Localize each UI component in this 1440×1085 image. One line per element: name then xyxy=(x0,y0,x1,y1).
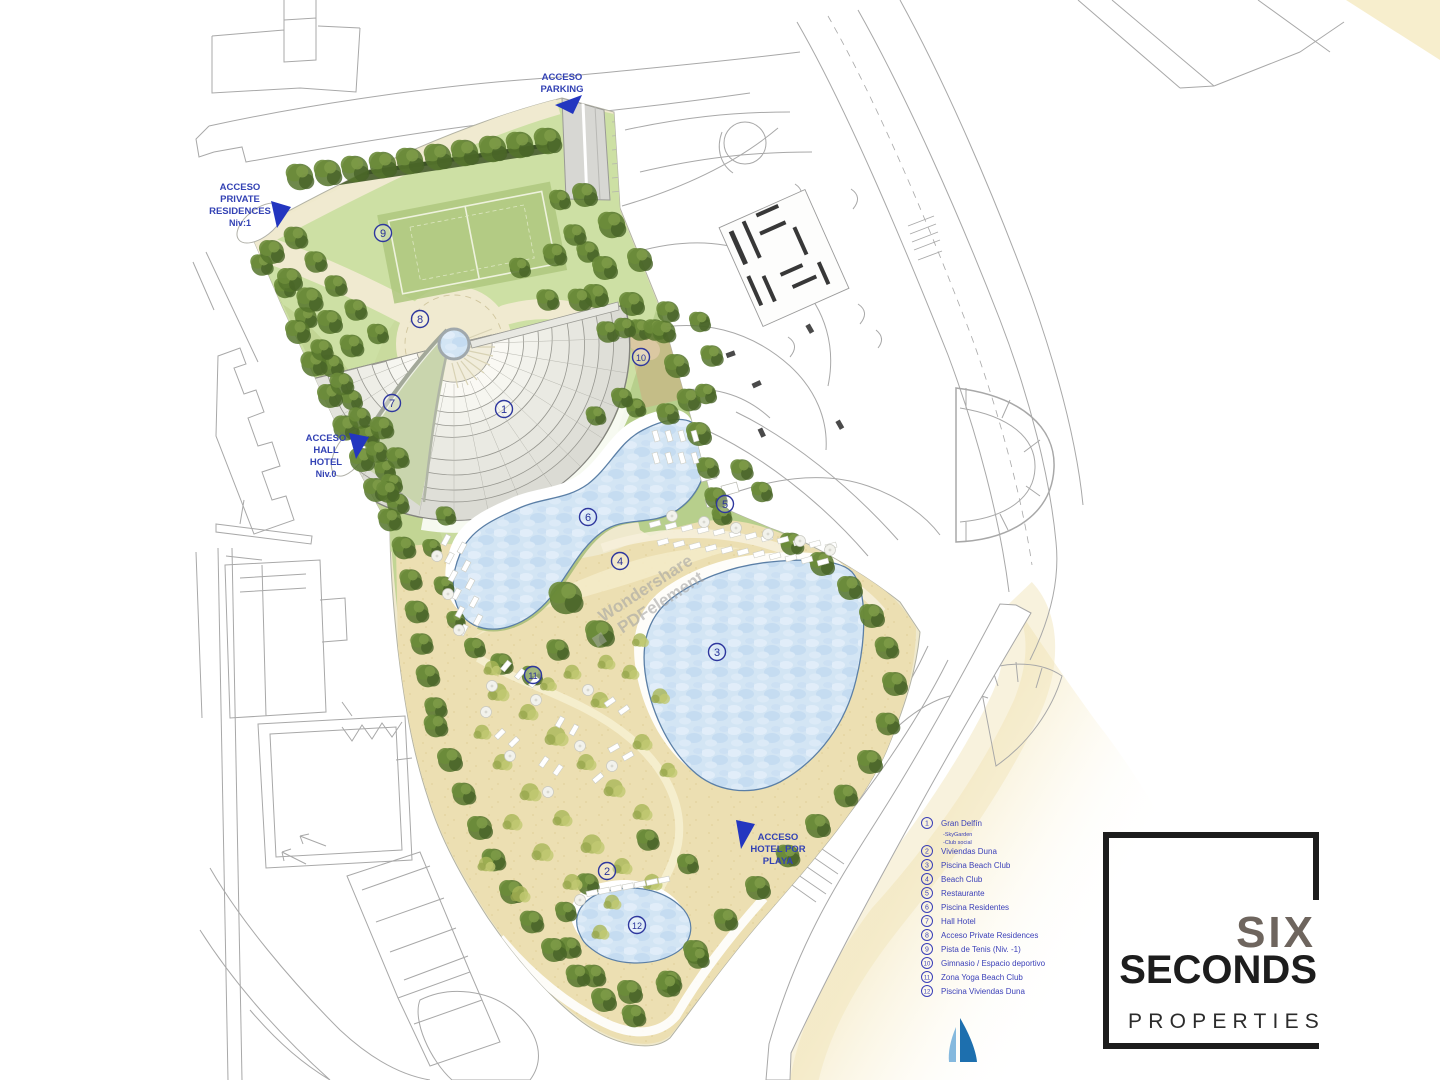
svg-text:RESIDENCES: RESIDENCES xyxy=(209,206,271,217)
svg-text:Piscina Beach Club: Piscina Beach Club xyxy=(941,861,1011,870)
svg-text:7: 7 xyxy=(925,919,929,926)
svg-text:3: 3 xyxy=(925,863,929,870)
svg-text:ACCESO: ACCESO xyxy=(542,72,583,83)
svg-text:SECONDS: SECONDS xyxy=(1119,948,1317,992)
svg-text:3: 3 xyxy=(714,647,720,659)
svg-text:HALL: HALL xyxy=(313,445,339,456)
svg-text:PARKING: PARKING xyxy=(540,84,583,95)
svg-text:ACCESO: ACCESO xyxy=(306,433,347,444)
svg-text:10: 10 xyxy=(636,353,646,363)
svg-text:5: 5 xyxy=(722,499,728,511)
svg-text:12: 12 xyxy=(632,921,642,931)
svg-text:11: 11 xyxy=(528,671,537,681)
svg-text:-SkyGarden: -SkyGarden xyxy=(943,832,972,838)
svg-text:6: 6 xyxy=(925,905,929,912)
svg-text:1: 1 xyxy=(925,821,929,828)
svg-text:2: 2 xyxy=(925,849,929,856)
svg-text:2: 2 xyxy=(604,866,610,878)
svg-text:Niv.0: Niv.0 xyxy=(316,469,337,479)
svg-text:4: 4 xyxy=(617,556,623,568)
svg-text:HOTEL POR: HOTEL POR xyxy=(750,844,805,855)
svg-text:4: 4 xyxy=(925,877,929,884)
svg-text:ACCESO: ACCESO xyxy=(758,832,799,843)
svg-text:PROPERTIES: PROPERTIES xyxy=(1128,1010,1325,1033)
svg-text:Gimnasio / Espacio deportivo: Gimnasio / Espacio deportivo xyxy=(941,959,1046,968)
svg-text:Viviendas Duna: Viviendas Duna xyxy=(941,847,997,856)
svg-text:-Club social: -Club social xyxy=(943,840,972,846)
svg-text:PLAYA: PLAYA xyxy=(763,856,794,867)
svg-text:PRIVATE: PRIVATE xyxy=(220,194,260,205)
svg-text:6: 6 xyxy=(585,512,591,524)
svg-text:Beach Club: Beach Club xyxy=(941,875,983,884)
svg-text:8: 8 xyxy=(925,933,929,940)
svg-text:Acceso Private Residences: Acceso Private Residences xyxy=(941,931,1038,940)
svg-text:10: 10 xyxy=(924,962,931,968)
svg-text:Piscina Viviendas Duna: Piscina Viviendas Duna xyxy=(941,987,1025,996)
svg-text:Restaurante: Restaurante xyxy=(941,889,985,898)
svg-text:1: 1 xyxy=(501,404,507,416)
svg-text:9: 9 xyxy=(925,947,929,954)
svg-text:7: 7 xyxy=(389,398,395,410)
svg-text:HOTEL: HOTEL xyxy=(310,457,342,468)
svg-text:9: 9 xyxy=(380,228,386,240)
svg-text:Pista de Tenis (Niv. -1): Pista de Tenis (Niv. -1) xyxy=(941,945,1021,954)
svg-text:Gran Delfín: Gran Delfín xyxy=(941,819,982,828)
svg-text:11: 11 xyxy=(924,976,931,982)
svg-text:ACCESO: ACCESO xyxy=(220,182,261,193)
svg-text:Niv:1: Niv:1 xyxy=(229,218,251,228)
svg-text:8: 8 xyxy=(417,314,423,326)
svg-text:Zona Yoga Beach Club: Zona Yoga Beach Club xyxy=(941,973,1023,982)
svg-text:12: 12 xyxy=(924,990,931,996)
svg-text:Hall Hotel: Hall Hotel xyxy=(941,917,976,926)
svg-text:5: 5 xyxy=(925,891,929,898)
svg-text:Piscina Residentes: Piscina Residentes xyxy=(941,903,1009,912)
